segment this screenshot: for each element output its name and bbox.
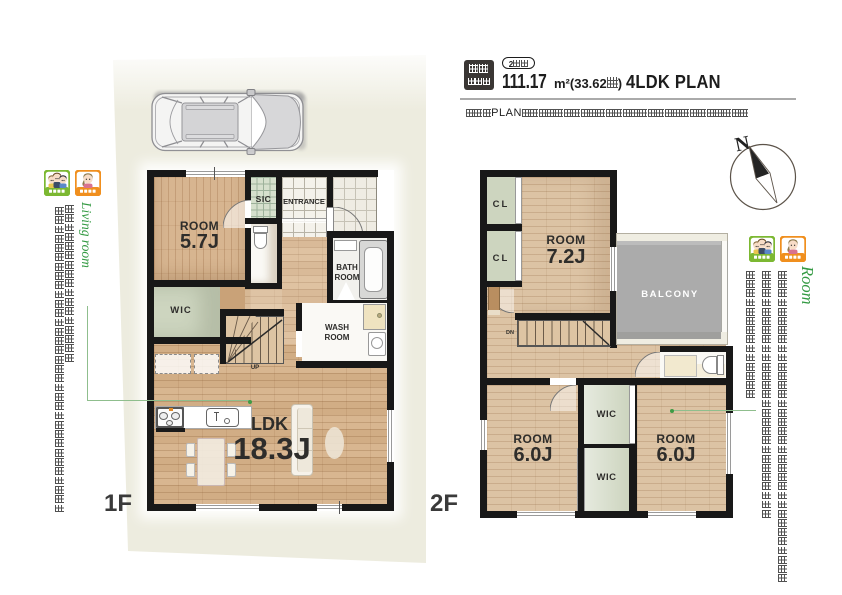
- svg-text:N: N: [733, 132, 752, 157]
